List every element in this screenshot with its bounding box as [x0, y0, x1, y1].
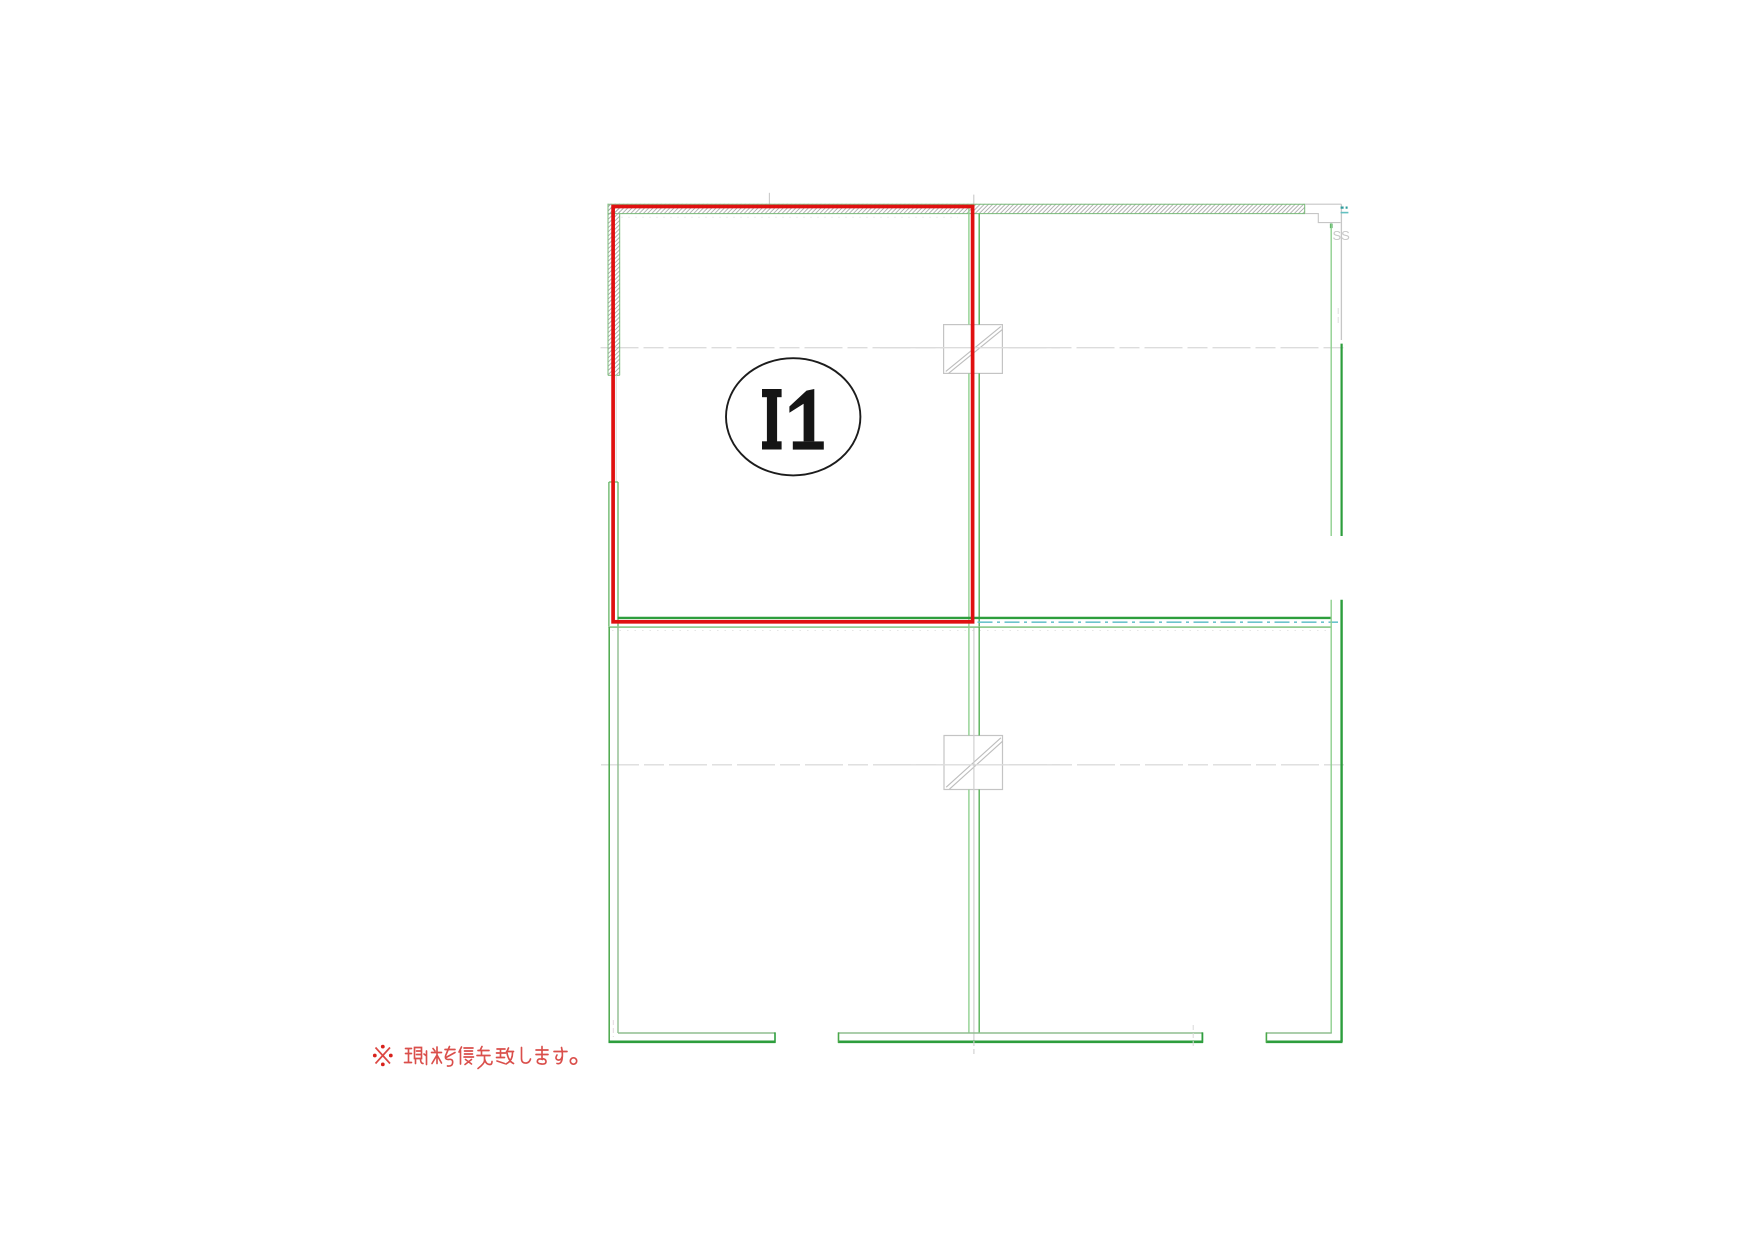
svg-text:SS: SS — [1333, 228, 1351, 243]
